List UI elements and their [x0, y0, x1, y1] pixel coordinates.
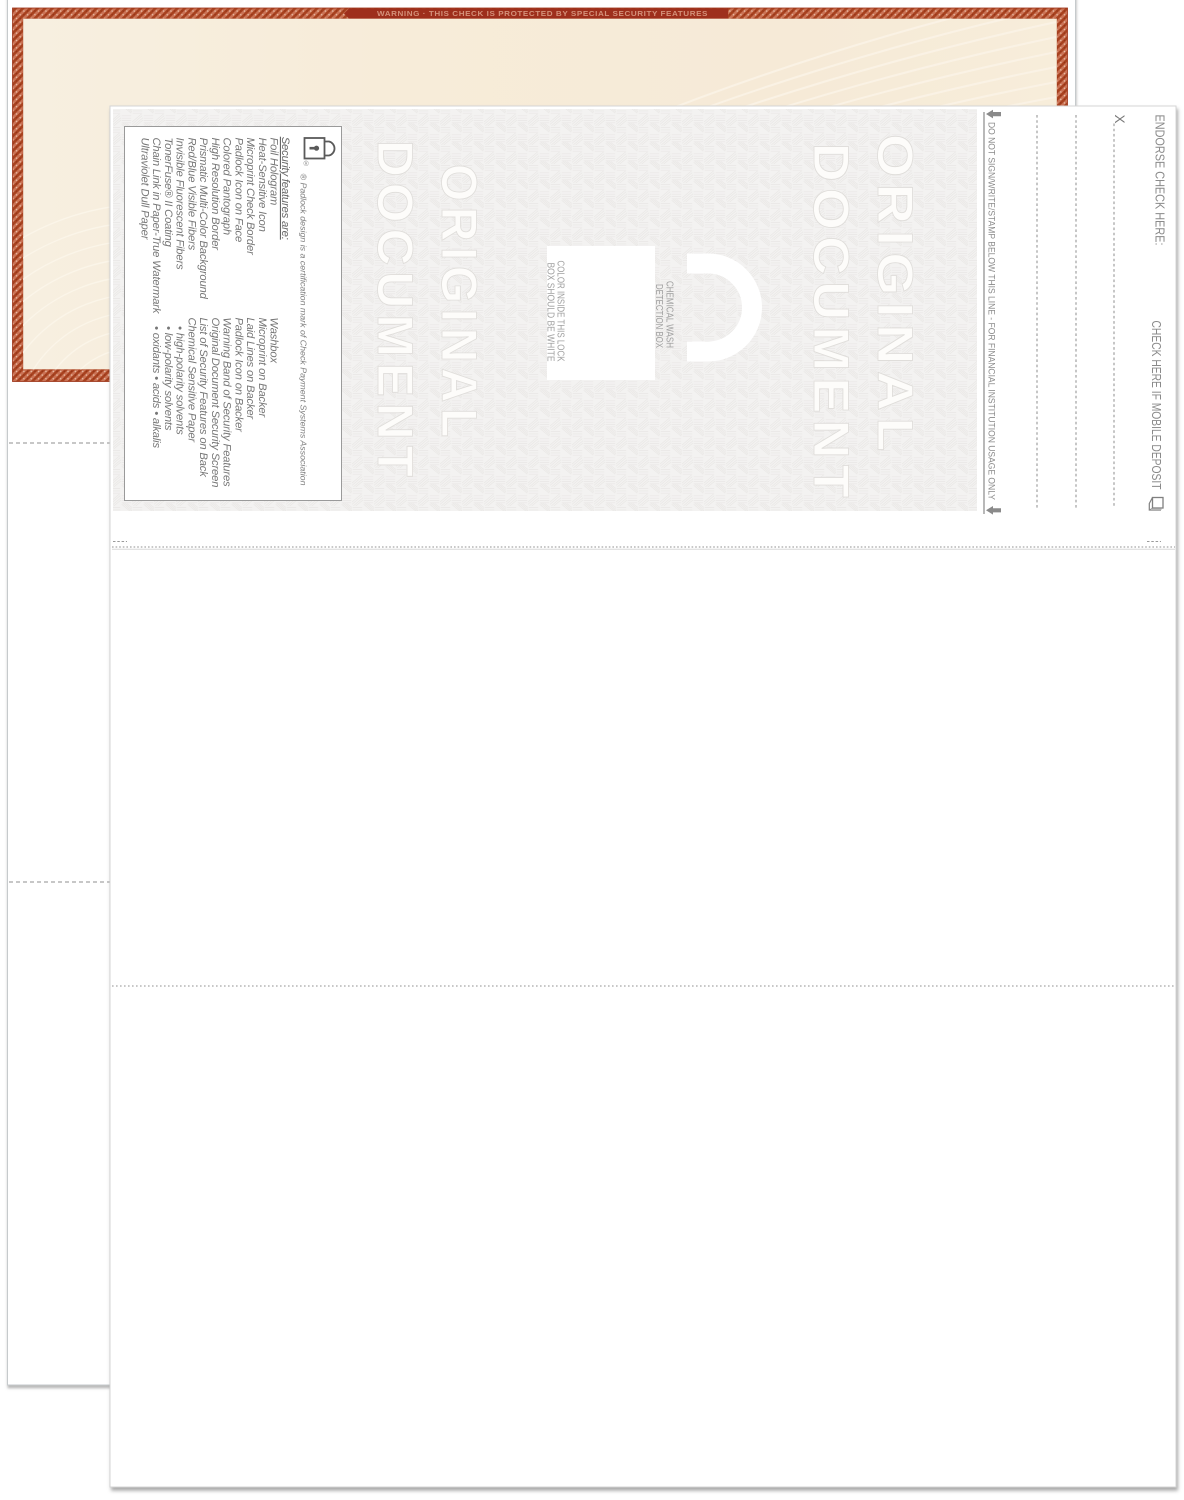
svg-text:Padlock Icon on Face: Padlock Icon on Face	[232, 138, 244, 243]
svg-text:WARNING · THIS CHECK IS PROTEC: WARNING · THIS CHECK IS PROTECTED BY SPE…	[377, 9, 708, 18]
svg-text:• high-polarity solvents: • high-polarity solvents	[174, 326, 186, 435]
svg-text:® Padlock design is a certific: ® Padlock design is a certification mark…	[299, 174, 309, 486]
svg-text:ORIGINAL: ORIGINAL	[867, 134, 923, 458]
svg-text:Warning Band of Security Featu: Warning Band of Security Features	[221, 318, 233, 488]
svg-text:Foil Hologram: Foil Hologram	[268, 138, 280, 206]
svg-text:Washbox: Washbox	[268, 318, 280, 364]
svg-text:Ultraviolet Dull Paper: Ultraviolet Dull Paper	[138, 138, 150, 241]
svg-text:Microprint on Backer: Microprint on Backer	[256, 318, 268, 419]
svg-text:• oxidants • acids • alkalis: • oxidants • acids • alkalis	[150, 326, 162, 449]
svg-text:Invisible Fluorescent Fibers: Invisible Fluorescent Fibers	[174, 138, 186, 271]
svg-text:DOCUMENT: DOCUMENT	[803, 143, 859, 504]
svg-text:®: ®	[304, 160, 310, 168]
svg-text:Laid Lines on Backer: Laid Lines on Backer	[244, 318, 256, 421]
svg-text:ORIGINAL: ORIGINAL	[431, 164, 487, 443]
svg-text:Chain Link in Paper-True Water: Chain Link in Paper-True Watermark	[150, 138, 162, 315]
svg-text:Chemical Sensitive Paper: Chemical Sensitive Paper	[185, 318, 197, 444]
svg-text:Colored Pantograph: Colored Pantograph	[221, 138, 233, 235]
svg-text:BOX SHOULD BE WHITE: BOX SHOULD BE WHITE	[545, 263, 556, 362]
svg-text:ENDORSE CHECK HERE:: ENDORSE CHECK HERE:	[1153, 115, 1167, 246]
svg-text:DETECTION BOX: DETECTION BOX	[653, 284, 664, 348]
svg-text:TonerFuse® II Coating: TonerFuse® II Coating	[162, 138, 174, 248]
svg-text:Security features are:: Security features are:	[279, 137, 291, 240]
svg-text:X: X	[1112, 115, 1127, 124]
svg-text:Original Document Security Scr: Original Document Security Screen	[209, 318, 221, 488]
svg-text:Prismatic Multi-Color Backgrou: Prismatic Multi-Color Background	[197, 138, 209, 300]
svg-text:DOCUMENT: DOCUMENT	[367, 140, 423, 483]
svg-text:Microprint Check Border: Microprint Check Border	[244, 138, 256, 257]
svg-text:CHEMICAL WASH: CHEMICAL WASH	[664, 281, 675, 348]
svg-text:CHECK HERE IF MOBILE DEPOSIT: CHECK HERE IF MOBILE DEPOSIT	[1149, 321, 1163, 490]
svg-text:List of Security Features on B: List of Security Features on Back	[197, 318, 209, 479]
svg-text:DO NOT SIGN/WRITE/STAMP BELOW: DO NOT SIGN/WRITE/STAMP BELOW THIS LINE …	[987, 122, 997, 500]
svg-text:High Resolution Border: High Resolution Border	[209, 138, 221, 252]
svg-text:• low-polarity solvents: • low-polarity solvents	[162, 326, 174, 431]
svg-text:Heat-Sensitive Icon: Heat-Sensitive Icon	[256, 138, 268, 232]
svg-text:Padlock Icon on Backer: Padlock Icon on Backer	[232, 318, 244, 434]
svg-text:Red/Blue Visible Fibers: Red/Blue Visible Fibers	[185, 138, 197, 251]
